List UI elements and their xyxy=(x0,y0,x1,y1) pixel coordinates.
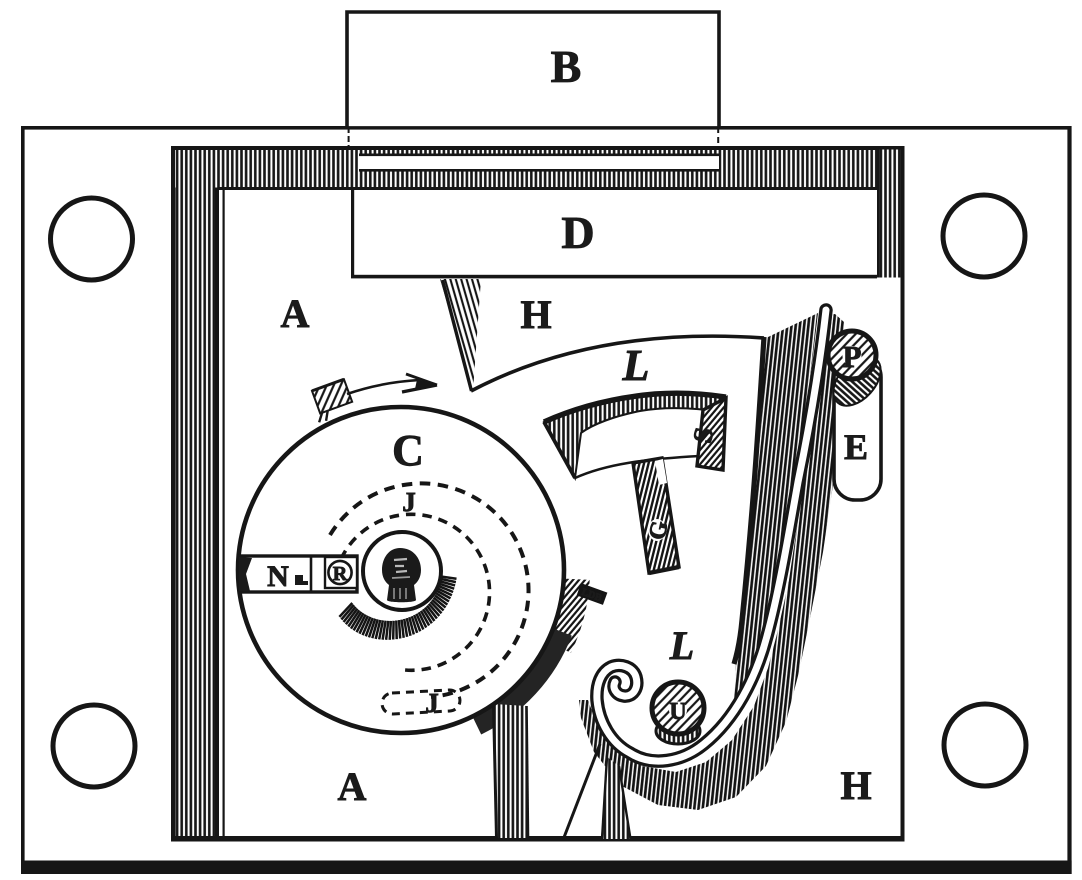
svg-text:L: L xyxy=(669,623,694,668)
svg-text:A: A xyxy=(338,764,367,809)
svg-text:J: J xyxy=(425,688,439,718)
svg-text:U: U xyxy=(669,699,686,725)
svg-text:H: H xyxy=(520,292,551,337)
svg-text:J: J xyxy=(402,487,416,517)
svg-text:R: R xyxy=(333,563,348,585)
svg-text:H: H xyxy=(840,763,871,808)
svg-text:N: N xyxy=(267,560,289,593)
svg-text:D: D xyxy=(561,207,594,258)
svg-text:B: B xyxy=(551,41,582,92)
svg-text:C: C xyxy=(392,426,424,475)
svg-text:L: L xyxy=(622,341,650,390)
svg-text:P: P xyxy=(843,339,862,374)
svg-text:A: A xyxy=(281,291,310,336)
svg-text:E: E xyxy=(844,427,868,467)
